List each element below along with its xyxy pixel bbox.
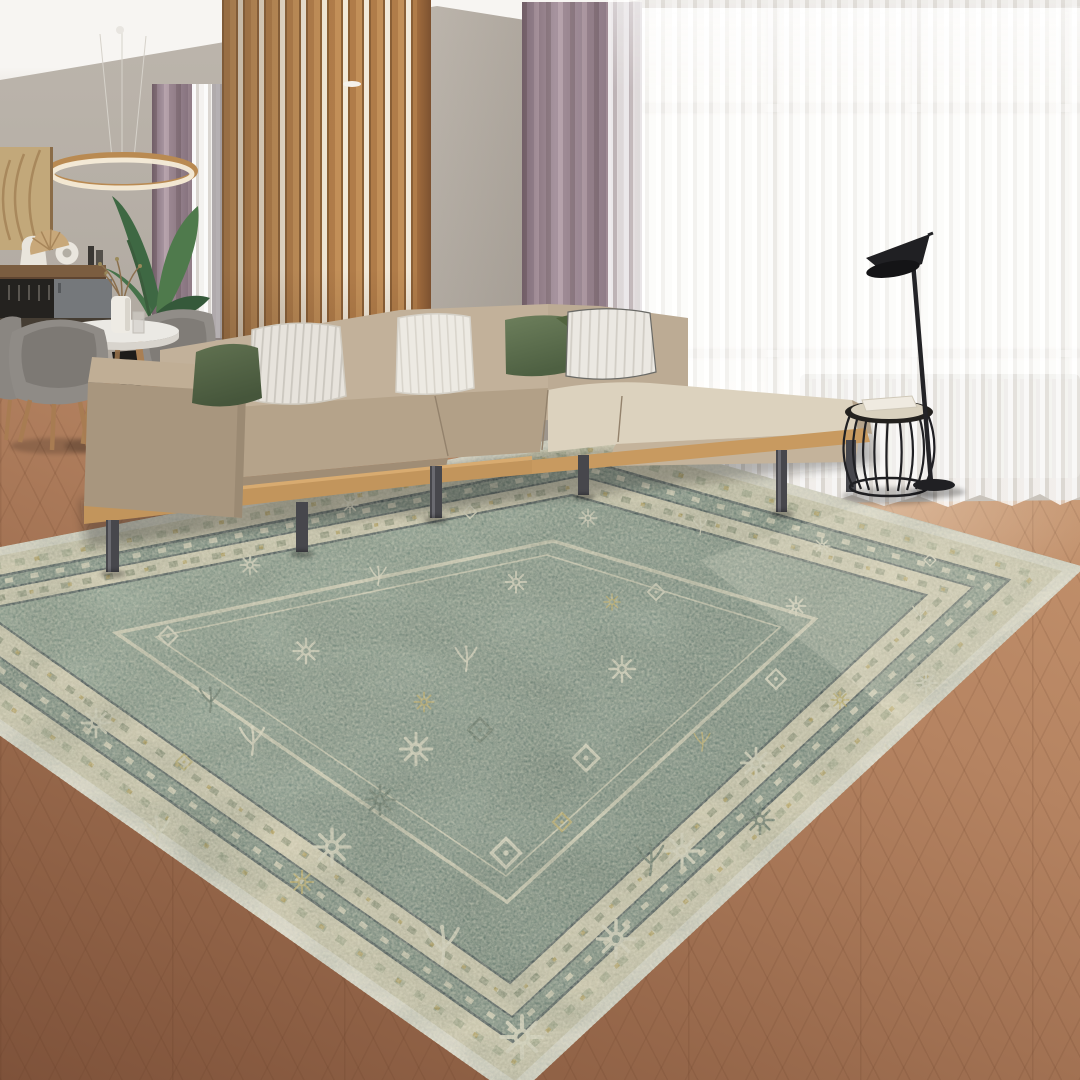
seat-cushion (435, 388, 548, 458)
grey-cabinet (54, 279, 112, 320)
drinking-glass (133, 312, 144, 333)
pillow-dark-green (192, 344, 262, 407)
photo-canvas (0, 0, 1080, 1080)
shelf-board (0, 265, 106, 277)
pillow-grey-stripe (566, 309, 656, 379)
lamp-shade (865, 233, 933, 281)
lamp-pole (913, 262, 931, 482)
pendant-ring-light (49, 26, 361, 188)
scene-artwork (0, 0, 1080, 1080)
floor-lamp (865, 233, 965, 498)
pillow-white-stripe (250, 323, 346, 404)
lamp-base (913, 479, 955, 491)
pillow-ivory-stripe (396, 314, 474, 395)
ceiling-vent (343, 81, 361, 87)
